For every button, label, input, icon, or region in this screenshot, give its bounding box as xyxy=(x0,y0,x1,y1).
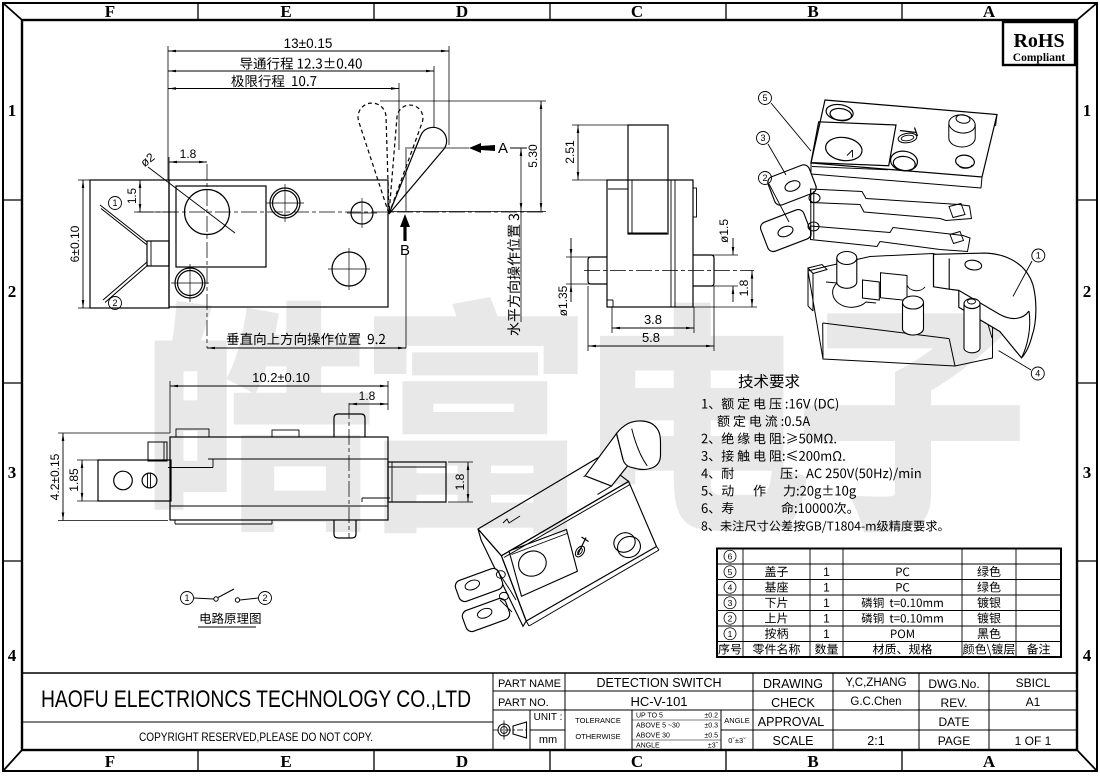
svg-text:C: C xyxy=(631,2,643,21)
svg-text:REV.: REV. xyxy=(941,696,968,710)
svg-text:SCALE: SCALE xyxy=(773,734,814,748)
svg-text:2.51: 2.51 xyxy=(563,140,577,164)
svg-text:4: 4 xyxy=(728,582,733,592)
svg-text:1: 1 xyxy=(823,627,830,641)
svg-text:A: A xyxy=(983,2,996,21)
svg-text:F: F xyxy=(105,752,115,771)
svg-text:±0.3: ±0.3 xyxy=(704,723,718,730)
svg-text:5.8: 5.8 xyxy=(642,330,660,345)
svg-text:E: E xyxy=(280,2,291,21)
svg-text:1.8: 1.8 xyxy=(180,147,197,161)
svg-text:TOLERANCE: TOLERANCE xyxy=(575,716,621,725)
svg-text:5: 5 xyxy=(728,567,733,577)
svg-text:1.8: 1.8 xyxy=(359,389,376,403)
svg-text:ANGLE: ANGLE xyxy=(636,743,660,750)
svg-text:A: A xyxy=(498,140,508,157)
svg-text:DETECTION SWITCH: DETECTION SWITCH xyxy=(597,676,722,690)
svg-text:0ˇ±3ˇ: 0ˇ±3ˇ xyxy=(728,736,746,745)
svg-text:1: 1 xyxy=(1036,251,1041,261)
svg-text:10.2±0.10: 10.2±0.10 xyxy=(252,370,310,385)
svg-text:A: A xyxy=(983,752,996,771)
svg-text:4.2±0.15: 4.2±0.15 xyxy=(48,453,62,500)
svg-text:B: B xyxy=(400,242,410,259)
svg-text:2: 2 xyxy=(1083,282,1092,301)
svg-text:RoHS: RoHS xyxy=(1013,30,1064,52)
svg-text:PART NO.: PART NO. xyxy=(498,697,549,709)
svg-text:2: 2 xyxy=(762,173,767,183)
svg-text:1 OF 1: 1 OF 1 xyxy=(1015,734,1052,748)
svg-text:F: F xyxy=(105,2,115,21)
svg-text:ø1.5: ø1.5 xyxy=(717,219,731,243)
svg-text:G.C.Chen: G.C.Chen xyxy=(850,696,901,708)
svg-text:1: 1 xyxy=(8,101,17,120)
svg-text:D: D xyxy=(456,2,468,21)
svg-text:3: 3 xyxy=(1083,463,1092,482)
svg-text:6: 6 xyxy=(728,551,733,561)
svg-text:1: 1 xyxy=(184,593,189,603)
svg-text:1.85: 1.85 xyxy=(67,468,81,492)
svg-text:ø1.35: ø1.35 xyxy=(556,285,570,316)
svg-text:6±0.10: 6±0.10 xyxy=(68,225,82,262)
svg-text:PAGE: PAGE xyxy=(938,734,970,748)
svg-text:ABOVE 5 ~30: ABOVE 5 ~30 xyxy=(636,723,680,730)
svg-text:E: E xyxy=(280,752,291,771)
svg-text:2:1: 2:1 xyxy=(867,734,884,748)
svg-text:2: 2 xyxy=(8,282,17,301)
svg-text:C: C xyxy=(631,752,643,771)
svg-text:1.8: 1.8 xyxy=(453,473,467,490)
svg-text:±3ˇ: ±3ˇ xyxy=(708,743,719,750)
svg-text:5.30: 5.30 xyxy=(526,144,540,168)
svg-text:UP TO 5: UP TO 5 xyxy=(636,713,663,720)
svg-text:3: 3 xyxy=(760,133,765,143)
svg-text:1.5: 1.5 xyxy=(127,188,139,204)
svg-text:ABOVE 30: ABOVE 30 xyxy=(636,733,670,740)
svg-text:ANGLE: ANGLE xyxy=(724,716,749,725)
svg-text:2: 2 xyxy=(728,613,733,623)
svg-text:13±0.15: 13±0.15 xyxy=(284,36,333,51)
svg-text:DWG.No.: DWG.No. xyxy=(928,677,979,691)
svg-text:Compliant: Compliant xyxy=(1013,52,1066,64)
svg-text:1: 1 xyxy=(823,565,830,579)
svg-text:3: 3 xyxy=(8,463,17,482)
svg-text:DATE: DATE xyxy=(938,715,969,729)
svg-text:3.8: 3.8 xyxy=(644,312,662,327)
svg-text:1.8: 1.8 xyxy=(737,279,751,296)
svg-text:B: B xyxy=(807,752,818,771)
svg-text:DRAWING: DRAWING xyxy=(763,677,823,691)
svg-text:4: 4 xyxy=(1035,369,1040,379)
svg-text:3: 3 xyxy=(728,598,733,608)
svg-text:HC-V-101: HC-V-101 xyxy=(630,694,687,709)
svg-text:A1: A1 xyxy=(1026,695,1041,709)
svg-text:1: 1 xyxy=(1083,101,1092,120)
svg-text:5: 5 xyxy=(762,93,767,103)
svg-text:1: 1 xyxy=(728,629,733,639)
svg-text:D: D xyxy=(456,752,468,771)
svg-text:B: B xyxy=(807,2,818,21)
svg-text:2: 2 xyxy=(262,593,267,603)
svg-text:HAOFU ELECTRIONCS TECHNOLOGY C: HAOFU ELECTRIONCS TECHNOLOGY CO.,LTD xyxy=(41,686,471,713)
svg-text:±0.5: ±0.5 xyxy=(704,733,718,740)
svg-text:4: 4 xyxy=(8,646,17,665)
svg-text:CHECK: CHECK xyxy=(771,696,815,710)
svg-text:PART NAME: PART NAME xyxy=(498,678,561,690)
svg-text:1: 1 xyxy=(823,596,830,610)
svg-text:1: 1 xyxy=(112,198,117,208)
svg-text:UNIT :: UNIT : xyxy=(534,712,563,723)
svg-text:±0.2: ±0.2 xyxy=(704,713,718,720)
svg-text:COPYRIGHT RESERVED,PLEASE DO: COPYRIGHT RESERVED,PLEASE DO NOT COPY. xyxy=(139,732,373,744)
svg-text:SBICL: SBICL xyxy=(1016,676,1051,690)
svg-text:Y,C,ZHANG: Y,C,ZHANG xyxy=(845,677,906,689)
svg-text:1: 1 xyxy=(823,612,830,626)
svg-text:4: 4 xyxy=(1083,646,1092,665)
svg-text:2: 2 xyxy=(112,298,117,308)
svg-text:APPROVAL: APPROVAL xyxy=(758,715,825,729)
svg-text:mm: mm xyxy=(539,734,557,746)
svg-text:1: 1 xyxy=(823,581,830,595)
svg-text:OTHERWISE: OTHERWISE xyxy=(575,732,620,741)
